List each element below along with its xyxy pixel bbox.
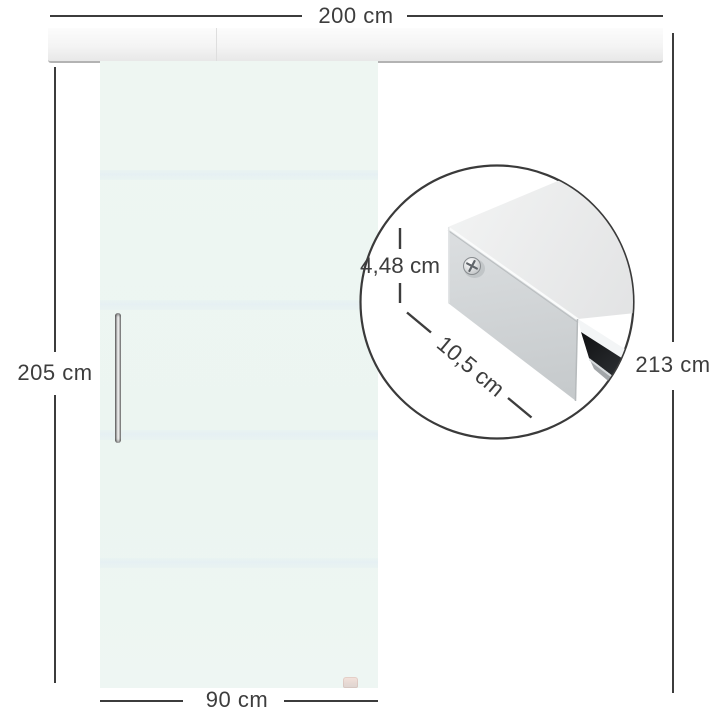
product-dimension-diagram: 200 cm 205 cm 213 cm 90 cm xyxy=(0,0,720,720)
frosted-stripe xyxy=(100,170,378,180)
dimension-right-line-top xyxy=(672,33,674,342)
glass-door-panel xyxy=(100,61,378,688)
dimension-left-line-bottom xyxy=(54,395,56,683)
frosted-stripe xyxy=(100,558,378,568)
dimension-top-line-right xyxy=(407,15,663,17)
rail-seam xyxy=(216,28,217,61)
frosted-stripe xyxy=(100,430,378,440)
dimension-left-line-top xyxy=(54,67,56,352)
dimension-bottom-line-right xyxy=(284,700,378,702)
door-handle-bar xyxy=(115,313,121,443)
inset-height-label: 4,48 cm xyxy=(360,253,440,278)
frosted-stripe xyxy=(100,300,378,310)
floor-guide-block xyxy=(343,677,358,688)
dimension-right-line-bottom xyxy=(672,390,674,693)
sliding-track-rail xyxy=(48,28,663,63)
dimension-left-label: 205 cm xyxy=(5,361,105,385)
track-detail-inset: 4,48 cm 10,5 cm xyxy=(351,156,643,448)
